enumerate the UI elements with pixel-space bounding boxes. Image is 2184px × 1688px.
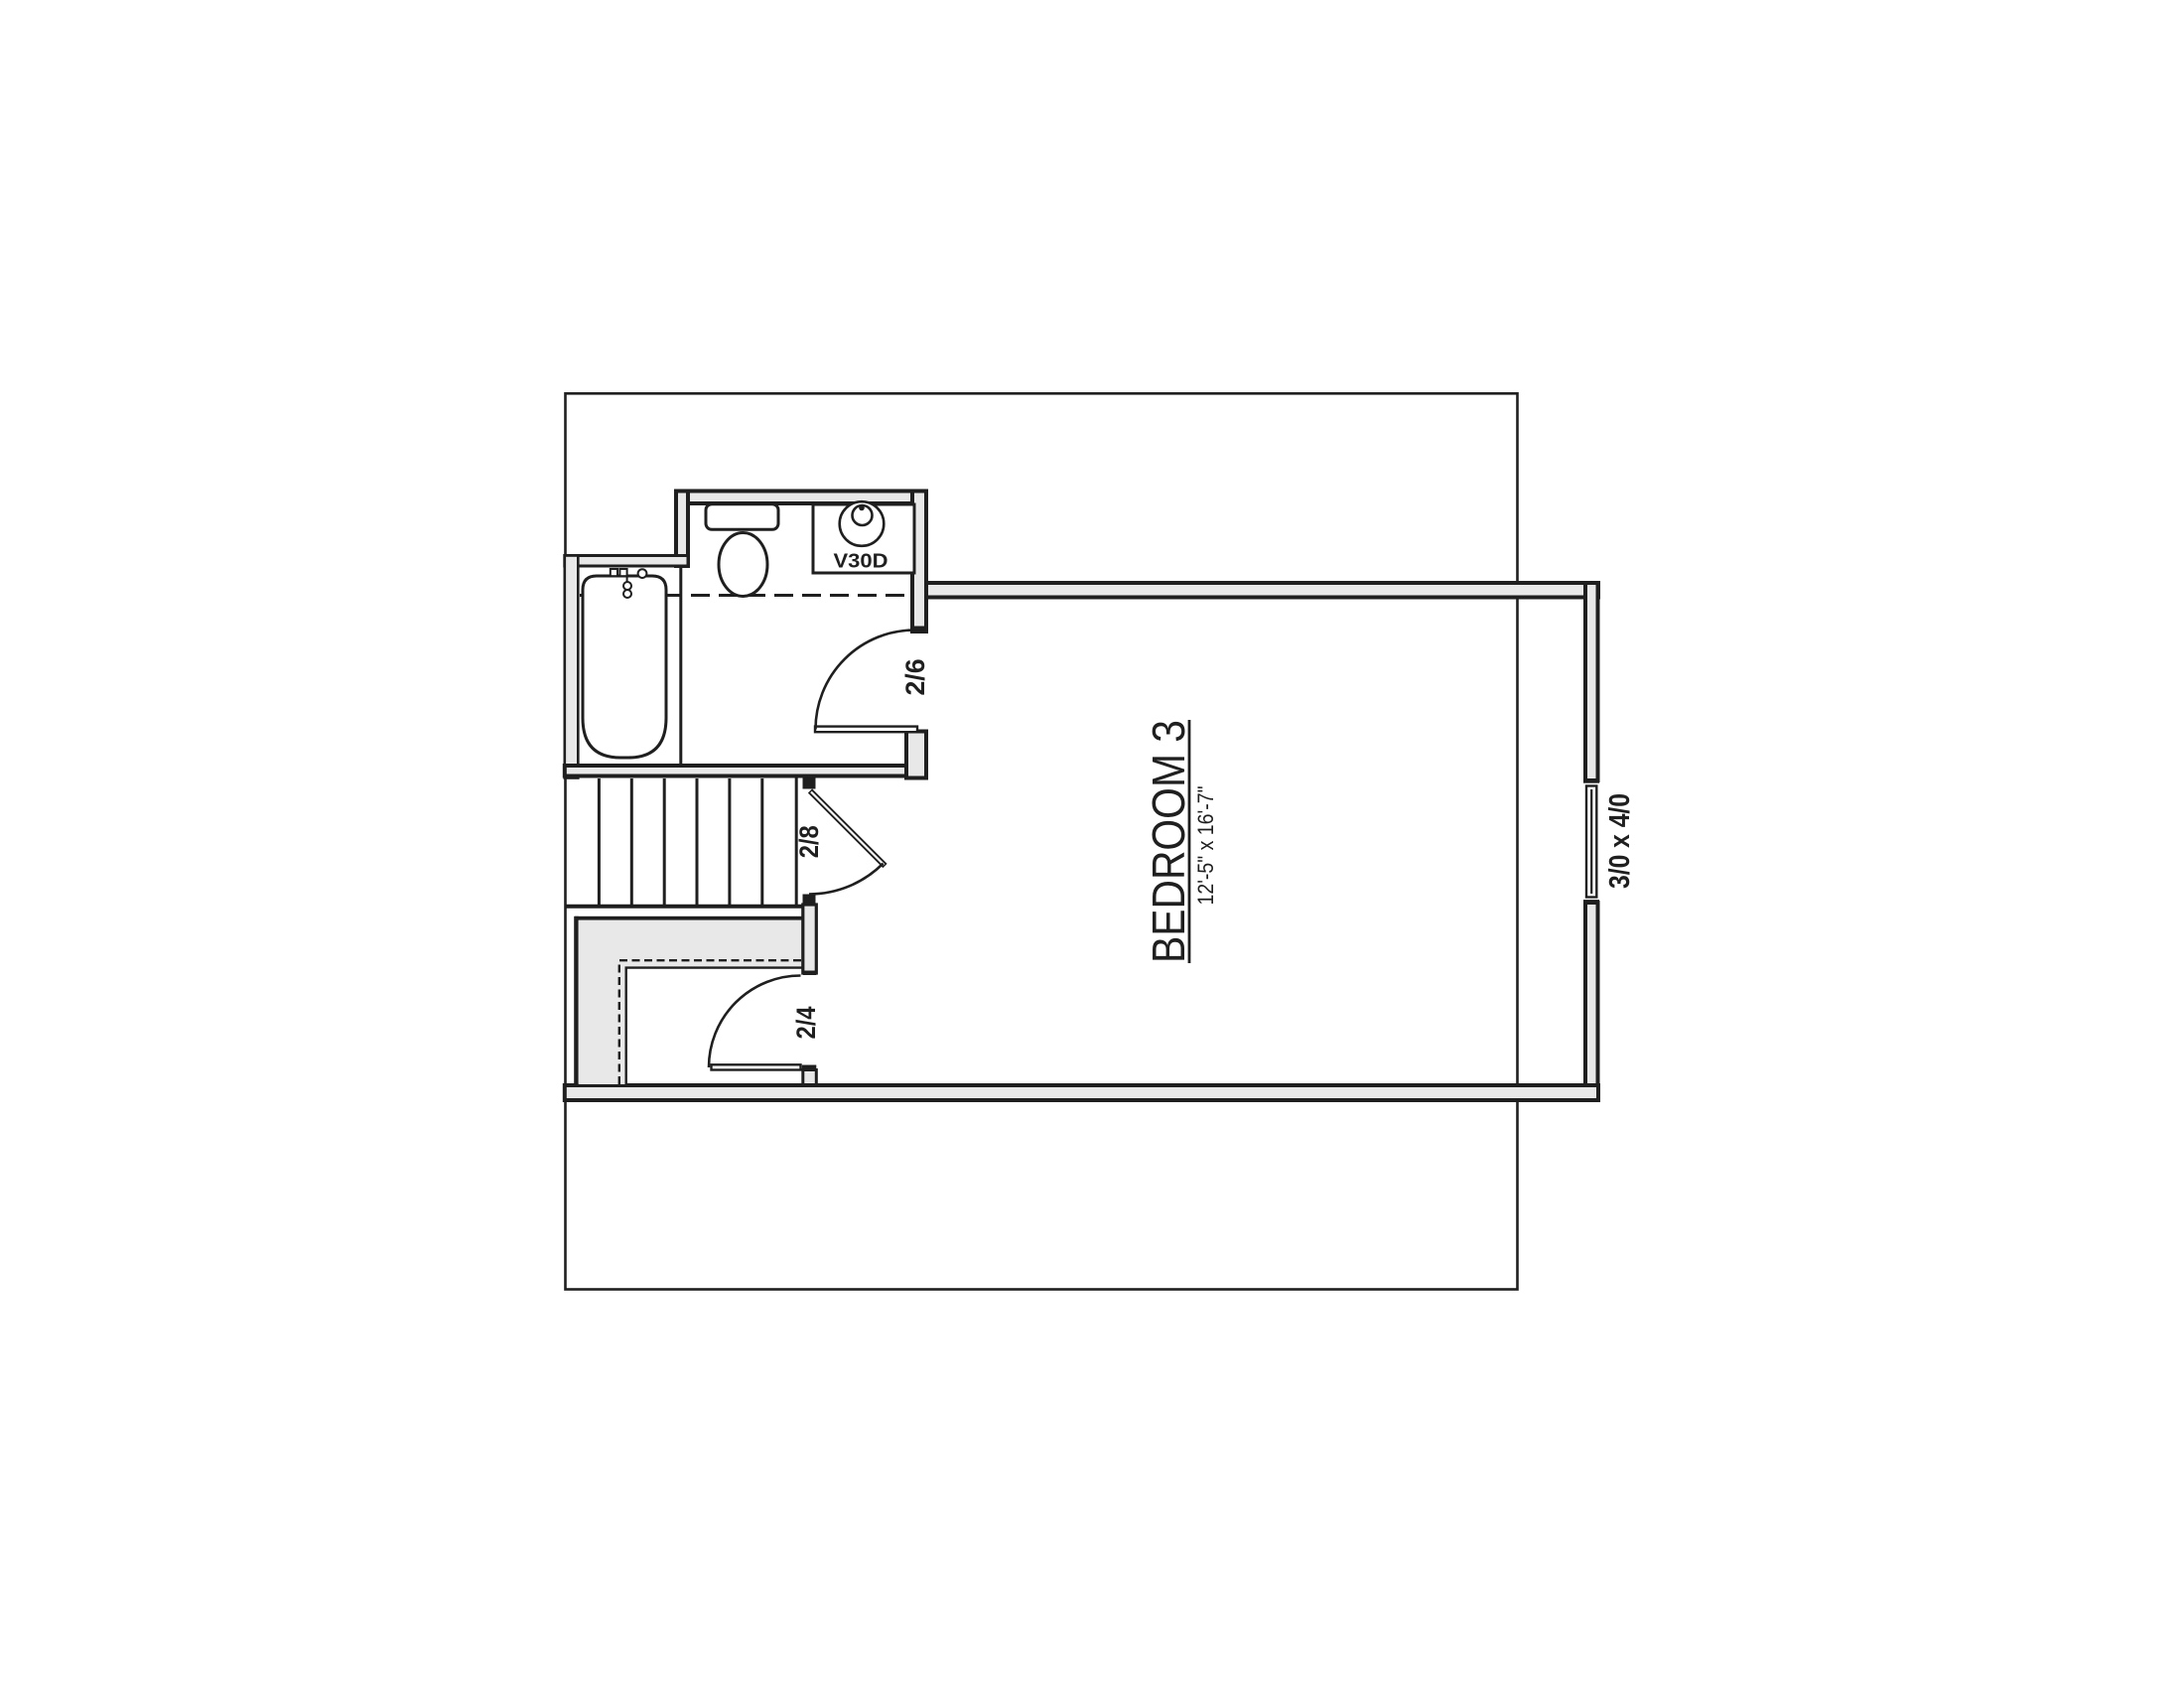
svg-text:12'-5" x 16'-7": 12'-5" x 16'-7" — [1193, 786, 1218, 906]
svg-text:BEDROOM 3: BEDROOM 3 — [1143, 720, 1194, 963]
svg-text:3/0 x 4/0: 3/0 x 4/0 — [1604, 793, 1636, 889]
svg-text:2/6: 2/6 — [900, 659, 930, 696]
svg-text:V30D: V30D — [834, 551, 888, 573]
svg-text:2/4: 2/4 — [791, 1007, 821, 1040]
svg-text:2/8: 2/8 — [794, 825, 824, 858]
